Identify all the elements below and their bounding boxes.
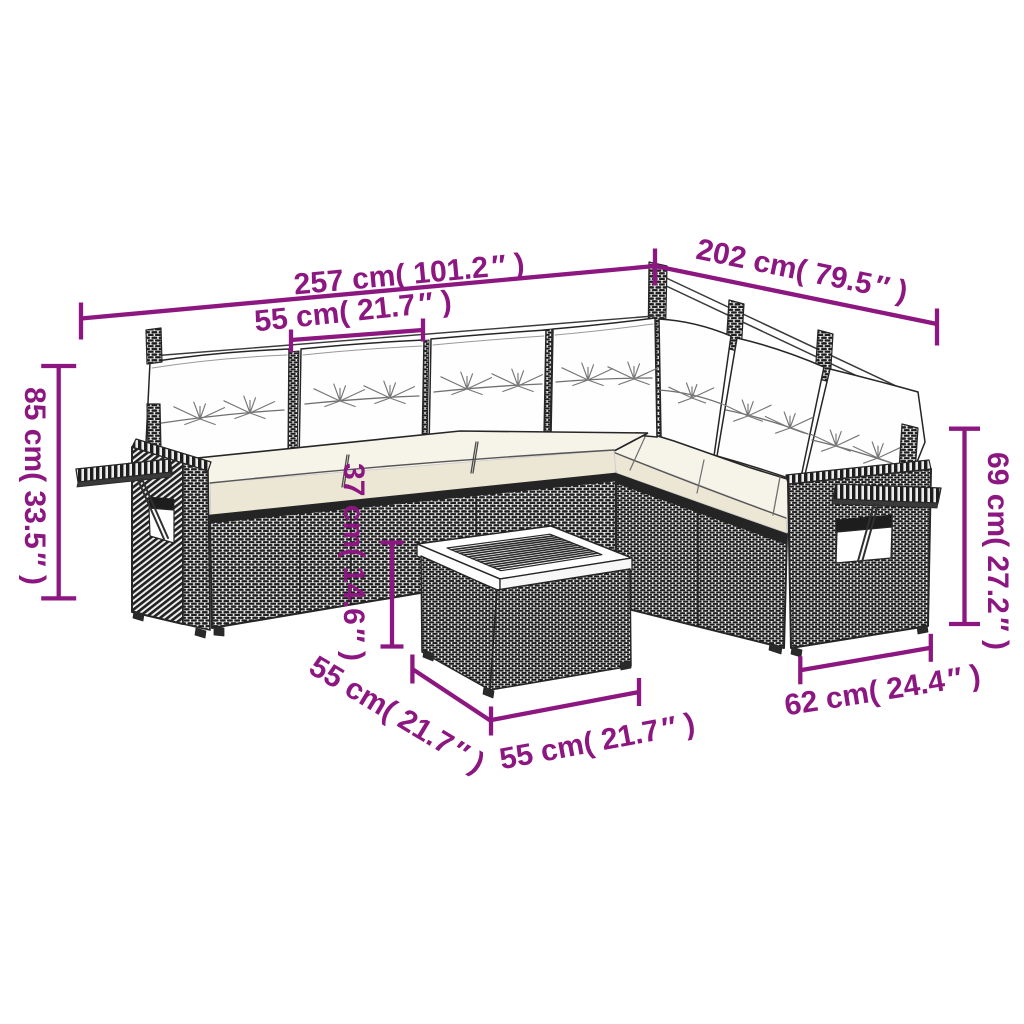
svg-text:69 cm( 27.2″ ): 69 cm( 27.2″ ) xyxy=(981,452,1014,650)
svg-text:37 cm( 14.6″ ): 37 cm( 14.6″ ) xyxy=(337,463,370,661)
svg-text:85 cm( 33.5″ ): 85 cm( 33.5″ ) xyxy=(18,387,51,585)
